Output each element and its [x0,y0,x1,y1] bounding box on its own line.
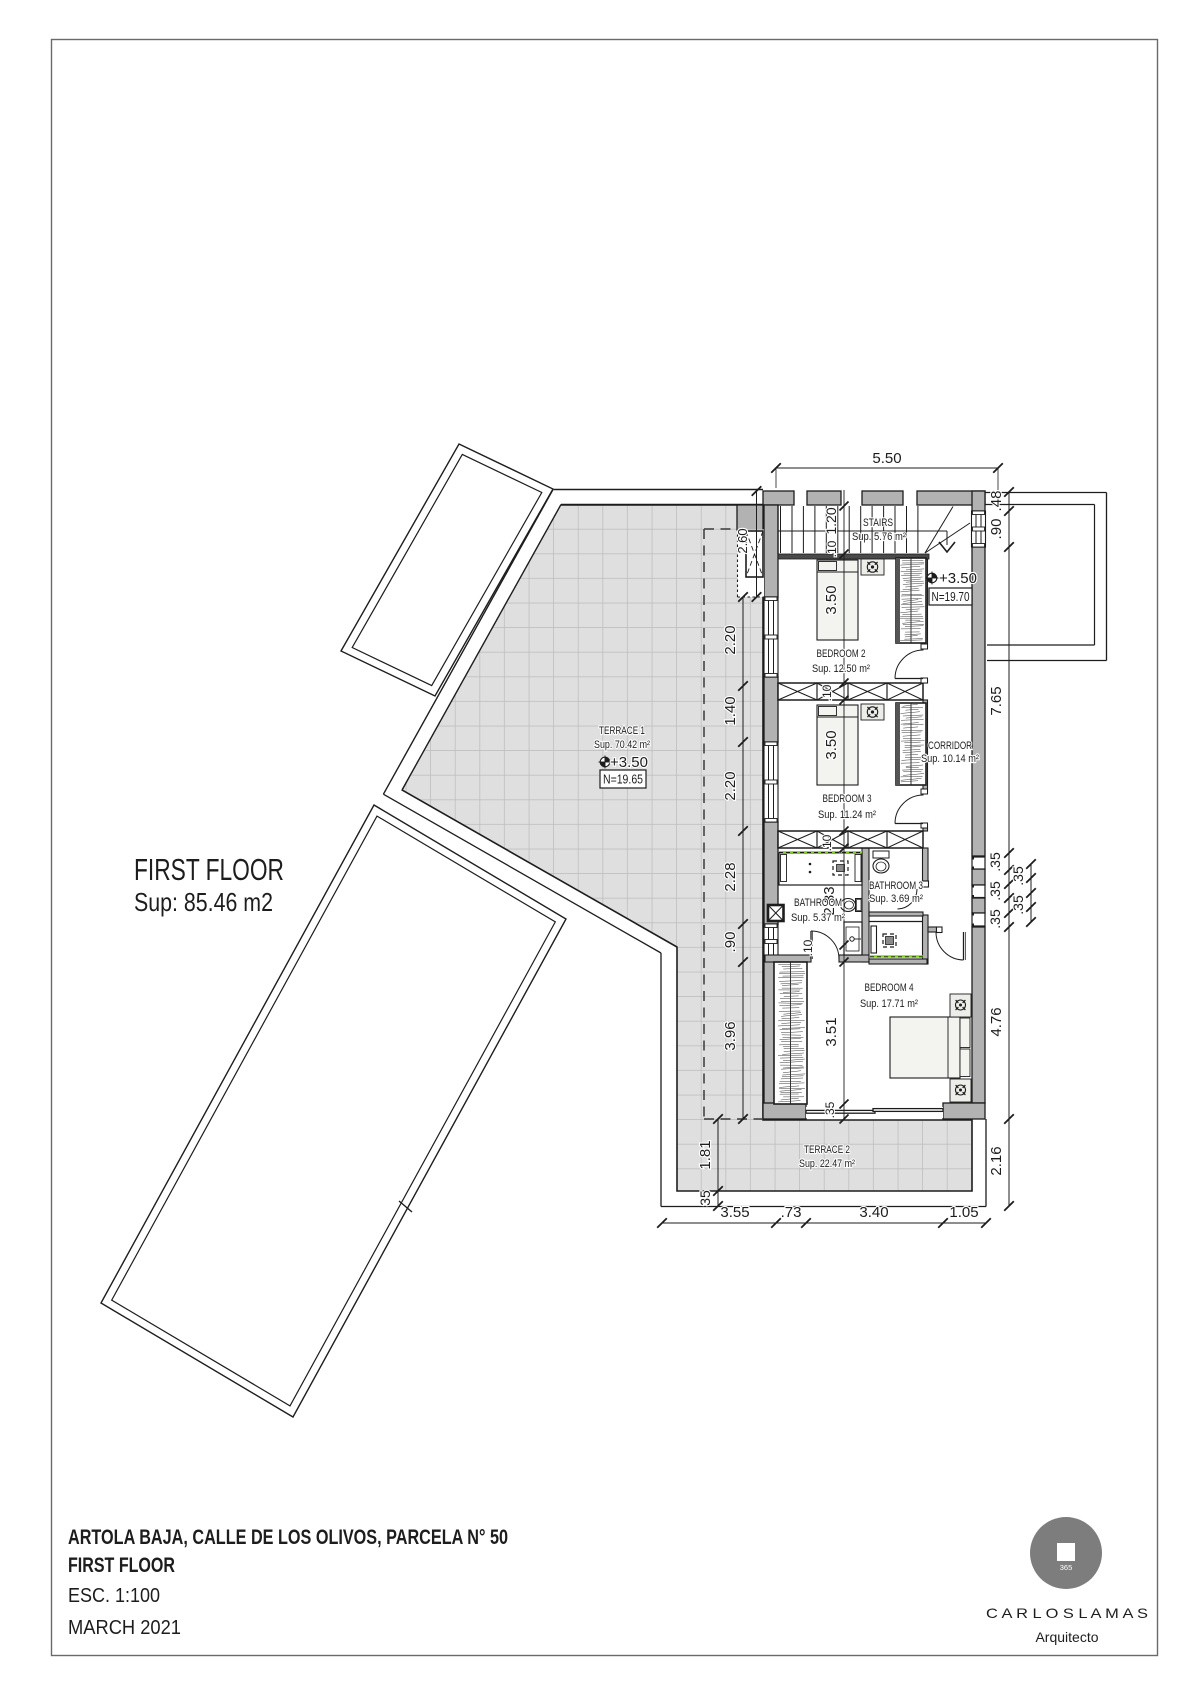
svg-text:Sup: 85.46 m2: Sup: 85.46 m2 [134,887,273,917]
svg-text:3.40: 3.40 [859,1204,888,1221]
svg-text:.10: .10 [820,834,834,851]
svg-text:.10: .10 [801,939,815,956]
svg-text:Sup. 5.37 m²: Sup. 5.37 m² [791,912,845,924]
svg-text:+3.50: +3.50 [610,754,648,771]
svg-text:ARTOLA BAJA, CALLE DE LOS OLIV: ARTOLA BAJA, CALLE DE LOS OLIVOS, PARCEL… [68,1526,508,1549]
svg-text:Arquitecto: Arquitecto [1035,1629,1098,1645]
svg-text:3.50: 3.50 [823,730,840,759]
svg-text:35: 35 [697,1190,713,1206]
svg-text:.35: .35 [823,1101,837,1118]
svg-text:2.60: 2.60 [735,528,750,553]
svg-text:.35: .35 [1010,866,1026,886]
svg-text:.90: .90 [988,519,1005,540]
svg-text:Sup. 3.69 m²: Sup. 3.69 m² [869,893,923,905]
svg-text:Sup. 5.76 m²: Sup. 5.76 m² [852,531,906,543]
svg-text:3.51: 3.51 [823,1017,840,1046]
svg-text:C A R L O S L A M A S: C A R L O S L A M A S [986,1605,1148,1621]
svg-text:.10: .10 [820,684,834,701]
svg-text:N=19.65: N=19.65 [603,772,643,787]
svg-text:3.96: 3.96 [722,1021,739,1050]
svg-text:Sup. 11.24 m²: Sup. 11.24 m² [818,809,876,821]
svg-text:3.50: 3.50 [823,585,840,614]
svg-text:FIRST FLOOR: FIRST FLOOR [134,852,284,887]
svg-text:BEDROOM 4: BEDROOM 4 [865,982,914,994]
svg-text:ESC. 1:100: ESC. 1:100 [68,1585,160,1607]
svg-text:1.40: 1.40 [722,696,739,725]
svg-text:.35: .35 [987,852,1003,872]
svg-text:365: 365 [1060,1563,1073,1572]
svg-text:Sup. 70.42 m²: Sup. 70.42 m² [594,739,650,751]
svg-text:.73: .73 [781,1204,802,1221]
svg-text:Sup. 12.50 m²: Sup. 12.50 m² [812,663,870,675]
svg-text:.35: .35 [1010,895,1026,915]
svg-text:+3.50: +3.50 [939,570,977,587]
svg-text:4.76: 4.76 [988,1007,1005,1036]
svg-text:.35: .35 [987,881,1003,901]
svg-text:Sup. 10.14 m²: Sup. 10.14 m² [921,753,979,765]
svg-text:2.28: 2.28 [722,862,739,891]
svg-text:3.55: 3.55 [720,1204,749,1221]
svg-text:TERRACE 2: TERRACE 2 [804,1144,850,1156]
svg-text:BEDROOM 3: BEDROOM 3 [823,793,872,805]
svg-text:2.20: 2.20 [722,771,739,800]
svg-text:1.20: 1.20 [823,507,839,534]
svg-text:.48: .48 [988,491,1005,512]
svg-text:2.20: 2.20 [722,625,739,654]
svg-text:1.81: 1.81 [697,1140,714,1169]
svg-text:BATHROOM 3: BATHROOM 3 [869,880,923,892]
svg-text:.35: .35 [987,909,1003,929]
svg-text:BEDROOM 2: BEDROOM 2 [817,648,866,660]
svg-text:5.50: 5.50 [872,450,901,467]
svg-text:1.05: 1.05 [949,1204,978,1221]
svg-text:7.65: 7.65 [988,686,1005,715]
svg-text:Sup. 17.71 m²: Sup. 17.71 m² [860,998,918,1010]
svg-text:Sup. 22.47 m²: Sup. 22.47 m² [799,1158,855,1170]
svg-text:N=19.70: N=19.70 [932,589,970,604]
svg-text:2.16: 2.16 [988,1146,1005,1175]
svg-text:MARCH 2021: MARCH 2021 [68,1617,181,1639]
svg-text:.90: .90 [722,932,739,953]
svg-text:CORRIDOR: CORRIDOR [928,740,972,752]
svg-text:TERRACE 1: TERRACE 1 [599,725,645,737]
svg-text:BATHROOM: BATHROOM [794,897,842,909]
svg-text:FIRST FLOOR: FIRST FLOOR [68,1554,175,1577]
svg-text:STAIRS: STAIRS [863,517,893,529]
svg-text:.10: .10 [825,540,839,557]
